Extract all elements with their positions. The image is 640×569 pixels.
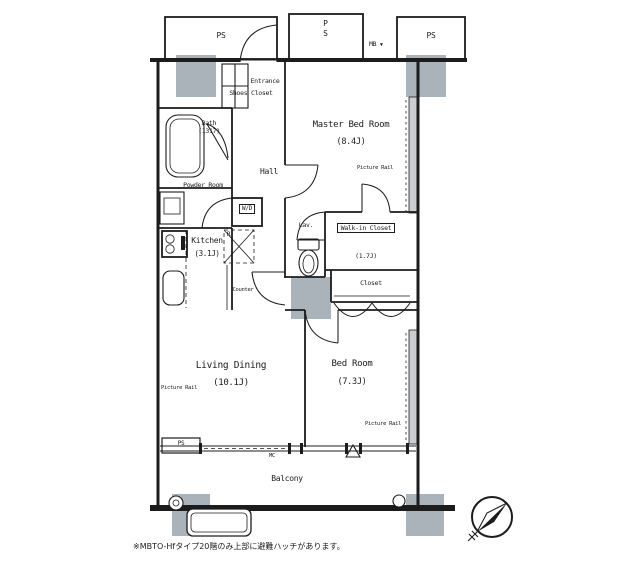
- plan-drawing: [0, 0, 640, 569]
- footnote: ※MBTO-Hfタイプ20階のみ上部に避難ハッチがあります。: [133, 542, 345, 552]
- powder-room-label: Powder Room: [180, 181, 226, 189]
- living-dining-label: Living Dining: [196, 360, 266, 372]
- hall-label: Hall: [260, 167, 278, 177]
- walk-in-closet-label: Walk-in Closet: [337, 223, 395, 233]
- kitchen-size: (3.1J): [194, 249, 219, 258]
- kitchen-label: Kitchen: [191, 236, 223, 246]
- shoes-closet-label: Shoes Closet: [229, 89, 272, 97]
- living-dining-size: (10.1J): [213, 378, 249, 389]
- entrance-label: Entrance: [251, 77, 280, 85]
- meter-box-text: MB: [369, 40, 376, 48]
- walk-in-closet-door: [362, 184, 390, 212]
- counter-label: Counter: [232, 287, 253, 294]
- bedroom-label: Bed Room: [332, 359, 373, 370]
- toilet-icon: [298, 239, 319, 276]
- shoe-cabinet-icon: [222, 64, 248, 108]
- meter-box-label: MB ▼: [369, 40, 383, 48]
- window-mark-label: MC: [269, 453, 275, 460]
- vanity-sink-icon: [160, 192, 184, 224]
- bath-label: Bath: [202, 119, 216, 127]
- master-bedroom-size: (8.4J): [337, 137, 366, 148]
- master-bedroom-door: [285, 165, 318, 198]
- powder-room-door: [202, 198, 232, 228]
- ps-shaft-top-right-label: PS: [426, 31, 435, 41]
- ps-shaft-bottom-label: PS: [178, 440, 185, 448]
- bathtub-icon: [166, 115, 204, 177]
- walk-in-closet-size: (1.7J): [355, 252, 377, 260]
- bath-size: (1317): [198, 127, 220, 135]
- kitchen-sink-icon: [163, 271, 184, 305]
- picture-rail-label-master: Picture Rail: [357, 165, 393, 172]
- floor-plan: PS PS PS MB ▼ Entrance Shoes Closet Mast…: [0, 0, 640, 569]
- bedroom-size: (7.3J): [338, 377, 367, 388]
- meter-box-arrow-icon: ▼: [380, 42, 383, 48]
- ps-shaft-top-left-label: PS: [216, 31, 225, 41]
- picture-rail-label-bedroom: Picture Rail: [365, 421, 401, 428]
- master-bedroom-label: Master Bed Room: [313, 120, 390, 131]
- evacuation-hatch-icon: [187, 509, 251, 536]
- balcony-label: Balcony: [271, 474, 303, 484]
- gas-stove-icon: [162, 231, 187, 257]
- closet-label: Closet: [360, 279, 382, 287]
- compass-icon: [468, 497, 512, 541]
- lavatory-label: Lav.: [299, 221, 313, 229]
- washer-dryer-label: W/D: [239, 204, 255, 214]
- ps-shaft-top-middle-label: PS: [320, 19, 330, 39]
- refrigerator-label: R: [227, 231, 230, 239]
- picture-rail-label-living: Picture Rail: [161, 385, 197, 392]
- living-dining-door: [252, 272, 285, 305]
